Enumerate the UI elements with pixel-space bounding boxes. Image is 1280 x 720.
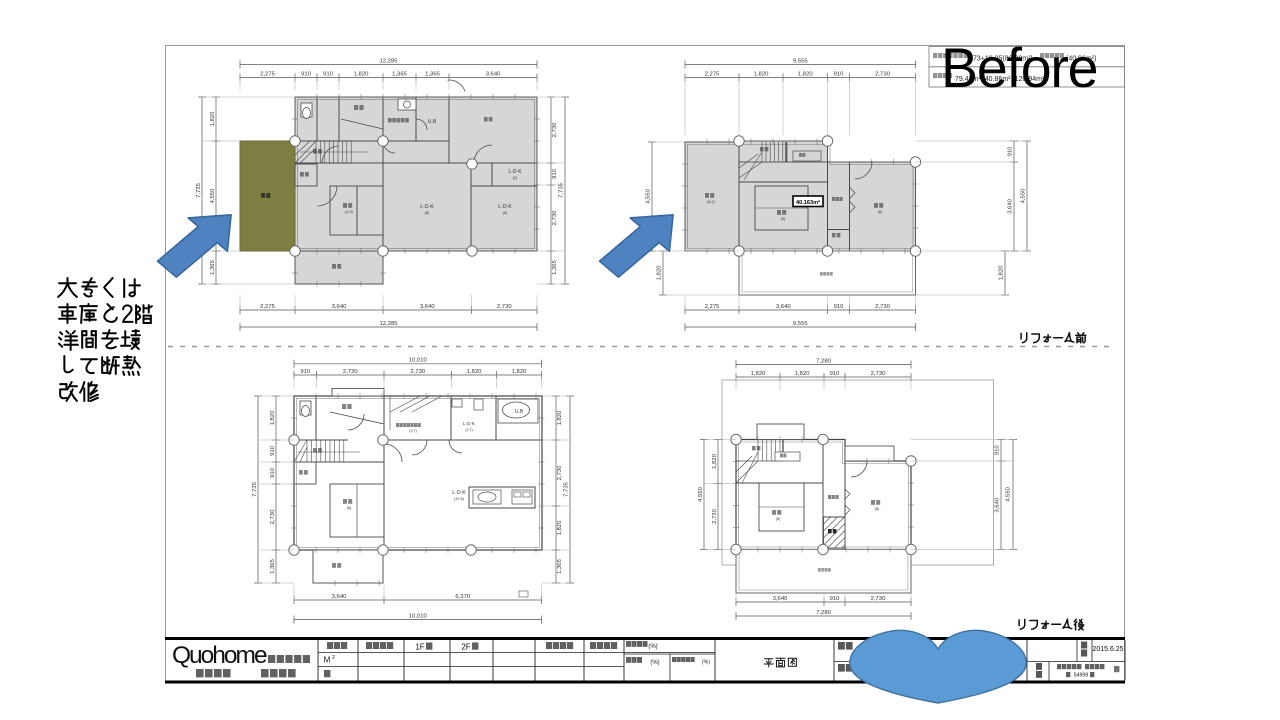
svg-text:3,640: 3,640	[773, 596, 788, 602]
svg-text:1,365: 1,365	[425, 71, 440, 77]
svg-text:(6): (6)	[878, 210, 883, 214]
svg-text:4,550: 4,550	[1021, 188, 1027, 203]
svg-text:2,730: 2,730	[552, 210, 558, 225]
svg-text:1,820: 1,820	[754, 71, 769, 77]
svg-text:L·D·K: L·D·K	[420, 204, 434, 210]
svg-text:1,820: 1,820	[557, 520, 563, 535]
svg-text:4,550: 4,550	[698, 486, 704, 501]
svg-text:1,820: 1,820	[712, 453, 718, 468]
svg-text:2015.6.25: 2015.6.25	[1092, 646, 1123, 653]
svg-text:(6): (6)	[776, 517, 781, 521]
svg-text:4,550: 4,550	[646, 188, 652, 203]
svg-text:2,730: 2,730	[875, 304, 890, 310]
svg-text:910: 910	[995, 445, 1001, 456]
svg-text:910: 910	[270, 445, 276, 456]
svg-text:3,640: 3,640	[420, 304, 435, 310]
svg-text:7,735: 7,735	[196, 182, 202, 197]
svg-text:7,280: 7,280	[816, 610, 831, 616]
svg-text:7,735: 7,735	[252, 481, 258, 496]
svg-text:7,735: 7,735	[564, 481, 570, 496]
svg-text:(8): (8)	[425, 211, 430, 215]
svg-text:910: 910	[834, 304, 845, 310]
svg-text:(%): (%)	[702, 660, 710, 666]
svg-text:1,820: 1,820	[512, 369, 527, 375]
svg-text:1,365: 1,365	[210, 259, 216, 274]
svg-text:910: 910	[301, 71, 312, 77]
svg-text:(6): (6)	[347, 506, 352, 510]
svg-text:1,820: 1,820	[467, 369, 482, 375]
svg-text:(4.5): (4.5)	[345, 210, 354, 214]
svg-text:910: 910	[300, 369, 311, 375]
svg-text:1,820: 1,820	[751, 371, 766, 377]
svg-text:1,820: 1,820	[354, 71, 369, 77]
svg-text:1,365: 1,365	[270, 558, 276, 573]
svg-text:910: 910	[552, 168, 558, 179]
svg-text:12,285: 12,285	[379, 321, 398, 327]
svg-text:1,365: 1,365	[552, 259, 558, 274]
svg-text:910: 910	[830, 371, 841, 377]
svg-text:M: M	[324, 656, 331, 665]
svg-text:2,275: 2,275	[260, 71, 275, 77]
svg-text:54999: 54999	[1074, 673, 1089, 679]
svg-text:910: 910	[270, 467, 276, 478]
svg-text:1F: 1F	[415, 643, 424, 652]
svg-text:1,820: 1,820	[557, 410, 563, 425]
svg-text:L·D·K: L·D·K	[452, 490, 466, 496]
svg-text:2,730: 2,730	[712, 508, 718, 523]
svg-text:(2.7): (2.7)	[465, 428, 472, 432]
svg-text:2,275: 2,275	[705, 71, 720, 77]
svg-text:9,555: 9,555	[793, 321, 808, 327]
svg-text:1,365: 1,365	[392, 71, 407, 77]
svg-text:1,820: 1,820	[999, 265, 1005, 280]
svg-text:3,640: 3,640	[332, 594, 347, 600]
svg-text:1,820: 1,820	[657, 265, 663, 280]
svg-text:Before: Before	[941, 37, 1097, 99]
svg-text:12,285: 12,285	[379, 58, 398, 64]
svg-text:2,275: 2,275	[260, 304, 275, 310]
svg-text:4,550: 4,550	[210, 188, 216, 203]
svg-text:2,730: 2,730	[871, 596, 886, 602]
svg-text:(2): (2)	[513, 176, 518, 180]
svg-text:3,640: 3,640	[1008, 198, 1014, 213]
svg-text:L·D·K: L·D·K	[508, 169, 522, 175]
svg-text:2,730: 2,730	[270, 509, 276, 524]
svg-text:(%): (%)	[648, 644, 657, 650]
svg-text:L·D·K: L·D·K	[463, 421, 476, 426]
svg-text:7,735: 7,735	[559, 182, 565, 197]
svg-text:9,555: 9,555	[793, 58, 808, 64]
svg-text:2,730: 2,730	[875, 71, 890, 77]
svg-text:U.B: U.B	[515, 409, 524, 415]
svg-text:U.B: U.B	[428, 119, 437, 125]
svg-text:2,730: 2,730	[552, 122, 558, 137]
svg-text:3,640: 3,640	[995, 497, 1001, 512]
svg-text:4,550: 4,550	[1006, 486, 1012, 501]
svg-text:(6): (6)	[781, 217, 786, 221]
svg-text:6,370: 6,370	[455, 594, 470, 600]
svg-text:10,010: 10,010	[409, 613, 428, 619]
svg-text:2: 2	[332, 655, 335, 661]
svg-text:2F: 2F	[461, 643, 470, 652]
svg-text:(19.6): (19.6)	[454, 497, 465, 501]
svg-text:(3.7): (3.7)	[409, 429, 416, 433]
svg-text:1,365: 1,365	[557, 558, 563, 573]
svg-text:(6): (6)	[503, 211, 508, 215]
svg-text:(8): (8)	[875, 507, 880, 511]
svg-text:1,820: 1,820	[270, 410, 276, 425]
svg-text:2,730: 2,730	[343, 369, 358, 375]
svg-text:1,820: 1,820	[210, 111, 216, 126]
svg-text:1,820: 1,820	[795, 371, 810, 377]
svg-text:1,820: 1,820	[798, 71, 813, 77]
svg-text:2,730: 2,730	[871, 371, 886, 377]
svg-text:3,640: 3,640	[486, 71, 501, 77]
svg-text:L·D·K: L·D·K	[498, 204, 512, 210]
svg-text:Quohome: Quohome	[172, 642, 267, 669]
svg-text:2,275: 2,275	[705, 304, 720, 310]
svg-text:2,730: 2,730	[557, 465, 563, 480]
svg-text:7,280: 7,280	[816, 358, 831, 364]
svg-text:3,640: 3,640	[332, 304, 347, 310]
svg-text:910: 910	[323, 71, 334, 77]
svg-text:910: 910	[1008, 146, 1014, 157]
svg-text:(8.2): (8.2)	[707, 200, 716, 204]
svg-text:(%): (%)	[650, 660, 659, 666]
svg-text:10,010: 10,010	[409, 358, 428, 364]
svg-text:2,730: 2,730	[497, 304, 512, 310]
svg-text:3,640: 3,640	[776, 304, 791, 310]
svg-text:910: 910	[834, 71, 845, 77]
svg-text:2,730: 2,730	[410, 369, 425, 375]
svg-text:40.163m²: 40.163m²	[796, 199, 820, 206]
svg-text:910: 910	[830, 596, 841, 602]
